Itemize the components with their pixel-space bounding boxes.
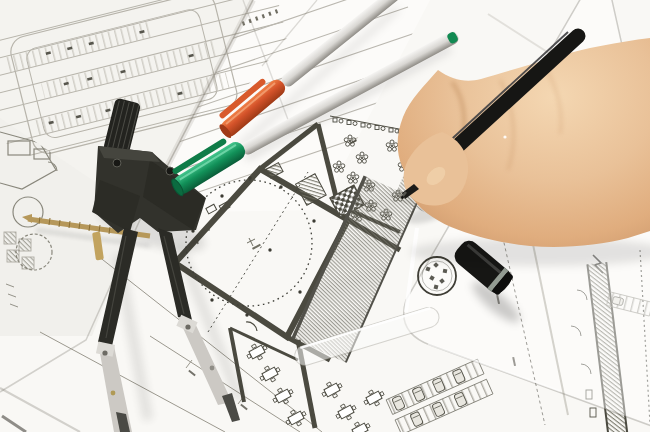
photo-architect-desk: Overhead close-up photo of an architect'… (0, 0, 650, 432)
skin-highlight (503, 135, 506, 138)
scene-canvas: Overhead close-up photo of an architect'… (0, 0, 650, 432)
